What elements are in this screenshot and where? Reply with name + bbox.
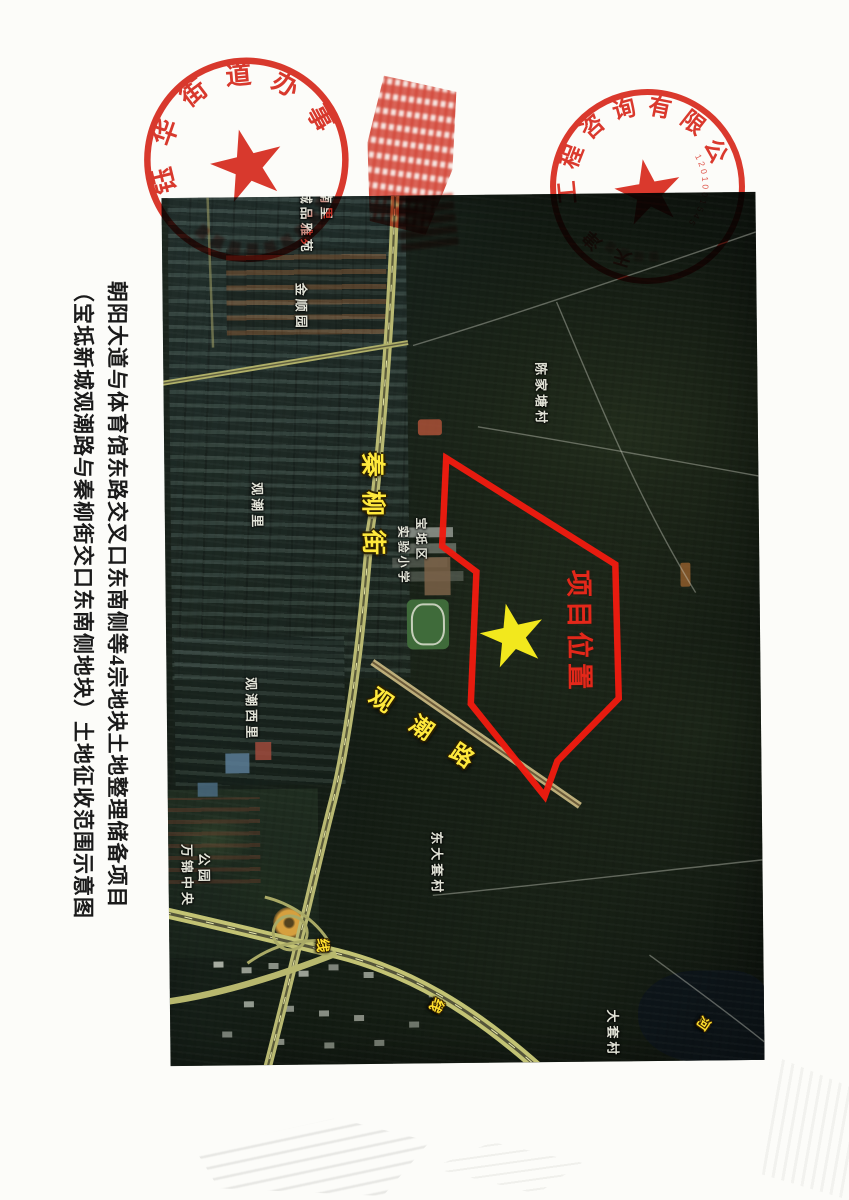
document-title: 朝阳大道与体育馆东路交叉口东南侧等4宗地块土地整理储备项目 （宝坻新城观潮路与秦… [66,281,134,926]
stamp-star-icon [204,121,291,205]
scan-artifact [432,1142,582,1194]
stamp-star-icon [610,154,686,227]
stamp-ring-text: 钰华街道办事处 [117,29,346,203]
scan-artifact [195,1118,430,1196]
document-title-line1: 朝阳大道与体育馆东路交叉口东南侧等4宗地块土地整理储备项目 [100,281,134,926]
svg-text:钰华街道办事处: 钰华街道办事处 [117,29,346,203]
document-title-line2: （宝坻新城观潮路与秦柳街交口东南侧地块）土地征收范围示意图 [66,281,100,926]
scanned-document-page: 朝阳大道与体育馆东路交叉口东南侧等4宗地块土地整理储备项目 （宝坻新城观潮路与秦… [0,0,849,1200]
project-location-label: 项目位置 [561,570,601,694]
stamp-ink-smudge [395,193,459,252]
project-location-star [475,597,551,670]
scan-artifact [762,1058,849,1200]
project-boundary-layer [161,192,764,1066]
satellite-map: 诚品雅苑 南里 金顺园 观潮里 宝坻区 实验小学 陈家塘村 观潮西里 万锦中央 … [161,192,764,1066]
consulting-company-stamp: 工程咨询有限公司 天津市 1201001545 [529,68,766,305]
